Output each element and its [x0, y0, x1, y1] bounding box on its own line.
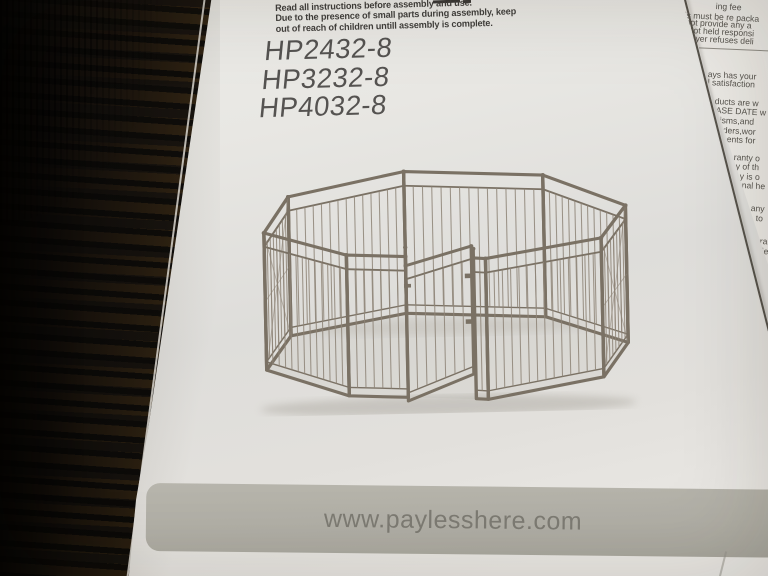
door-hinge: [465, 273, 473, 278]
side-page-line: l satisfaction: [708, 77, 756, 89]
side-page-separator: [699, 47, 768, 52]
side-page-line: ing fee: [716, 1, 742, 12]
website-band: www.paylesshere.com: [146, 483, 768, 558]
side-page-line: nal he: [742, 180, 766, 191]
website-text: www.paylesshere.com: [324, 504, 583, 536]
playpen-illustration: [243, 153, 648, 417]
background-vertical-wires: [0, 0, 190, 260]
model-number: HP4032-8: [258, 91, 389, 123]
side-page-line: uyer refuses deli: [690, 33, 753, 46]
side-page-line: ents for: [727, 134, 756, 145]
photo-scene: Read all instructions before assembly an…: [0, 0, 768, 576]
assembly-warning-text: Read all instructions before assembly an…: [275, 0, 531, 34]
model-number-list: HP2432-8 HP3232-8 HP4032-8: [258, 34, 394, 123]
side-page-line: to: [755, 213, 763, 223]
door-latch: [404, 284, 411, 288]
side-page-line: any: [751, 203, 765, 214]
door-hinge: [466, 319, 474, 324]
